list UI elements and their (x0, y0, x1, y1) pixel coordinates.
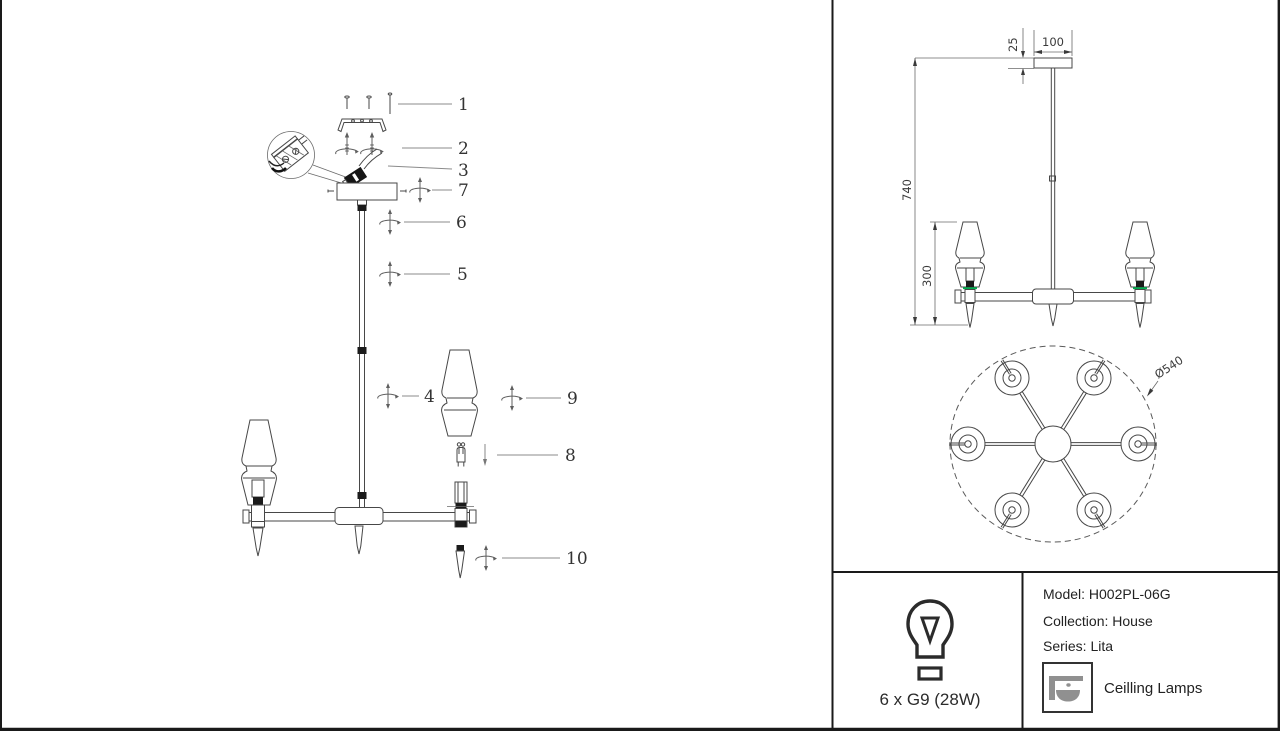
series-text: Series: Lita (1043, 638, 1113, 654)
svg-text:100: 100 (1042, 35, 1064, 49)
dim-canopy-width: 100 (1034, 30, 1072, 56)
part-label-2: 2 (458, 139, 469, 159)
dim-diameter: Ø540 (1147, 353, 1186, 397)
candle-finial (253, 528, 263, 556)
hanging-rod (358, 209, 402, 508)
svg-text:300: 300 (920, 265, 934, 287)
center-finial (355, 526, 363, 554)
collection-text: Collection: House (1043, 613, 1153, 629)
side-lamp-left (956, 222, 985, 328)
lamp-datasheet: 1 2 3 7 6 5 4 9 8 10 100 (0, 0, 1280, 731)
svg-text:740: 740 (900, 179, 914, 201)
model-text: Model: H002PL-06G (1043, 586, 1171, 602)
bulb-icon (908, 601, 952, 679)
bulb-spec-text: 6 x G9 (28W) (879, 690, 980, 710)
part-label-1: 1 (458, 95, 469, 115)
exploded-assembly-diagram: 1 2 3 7 6 5 4 9 8 10 (242, 93, 588, 578)
svg-text:Ø540: Ø540 (1152, 353, 1186, 382)
side-lamp-right (1126, 222, 1155, 328)
part-label-6: 6 (456, 213, 467, 233)
finial-part (456, 551, 465, 578)
part-label-10: 10 (566, 549, 588, 569)
lamp-assembly-left (242, 420, 277, 556)
detail-balloon (268, 132, 352, 186)
finial-cap (457, 545, 465, 551)
rod (1051, 68, 1054, 289)
leader-lines (388, 104, 561, 558)
rotation-arrow-icon (380, 209, 401, 235)
category-text: Ceilling Lamps (1104, 680, 1202, 697)
part-label-9: 9 (567, 389, 578, 409)
hub-top (1035, 426, 1071, 462)
part-labels: 1 2 3 7 6 5 4 9 8 10 (424, 95, 588, 569)
part-label-5: 5 (457, 265, 468, 285)
lamp-socket-exploded (447, 482, 497, 578)
rotation-arrow-icon (502, 385, 523, 411)
canopy (1034, 58, 1072, 68)
center-hub (1033, 289, 1074, 304)
mounting-screws (345, 93, 392, 114)
dimensioned-side-view: 100 25 740 300 (900, 28, 1155, 328)
dim-canopy-height: 25 (1006, 28, 1034, 84)
part-label-3: 3 (458, 161, 469, 181)
dim-shade-drop: 300 (920, 222, 957, 325)
top-view: Ø540 (949, 346, 1186, 542)
svg-text:25: 25 (1006, 37, 1020, 52)
rotation-arrow-icon (476, 545, 497, 571)
arm-bar (243, 508, 476, 555)
ceiling-lamp-icon (1043, 663, 1092, 712)
diameter-circle (950, 346, 1156, 542)
rotation-arrow-icon (378, 383, 399, 409)
rotation-arrow-icon (380, 261, 401, 287)
part-label-7: 7 (458, 181, 469, 201)
part-label-4: 4 (424, 387, 435, 407)
bracket-screws (336, 132, 384, 155)
mounting-bracket (338, 119, 386, 132)
center-hub (335, 508, 383, 525)
halogen-bulb-part (457, 443, 487, 467)
part-label-8: 8 (565, 446, 576, 466)
glass-shade-part (442, 350, 523, 436)
